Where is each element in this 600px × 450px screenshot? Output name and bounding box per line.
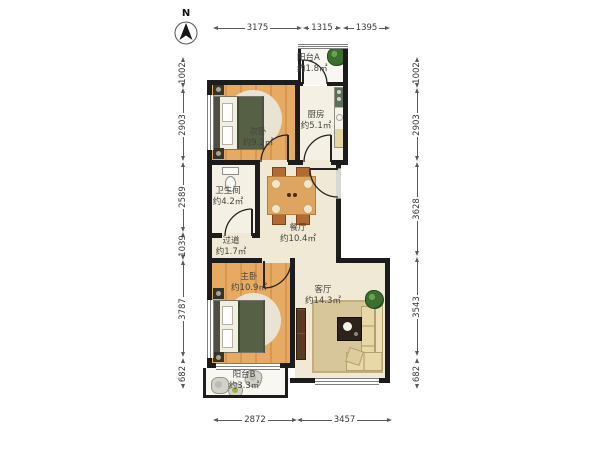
room-area: 约9.2㎡ (236, 138, 280, 149)
room-name: 客厅 (300, 285, 346, 296)
wall (255, 160, 260, 238)
stove-icon (335, 88, 343, 107)
dimension-top-1: 3175 (213, 22, 302, 34)
room-label-master: 主卧 约10.9㎡ (226, 272, 272, 293)
room-label-hallway: 过道 约1.7㎡ (209, 236, 253, 257)
dimension-right-4: 3543 (411, 257, 423, 356)
dimension-left-4: 1039 (177, 232, 189, 260)
nightstand (213, 288, 224, 299)
dimension-value: 2872 (242, 415, 268, 425)
room-name: 主卧 (226, 272, 272, 283)
dimension-right-5: 682 (411, 358, 423, 389)
wall (290, 258, 295, 368)
table-centerpiece (293, 193, 297, 197)
coffee-table (337, 317, 362, 341)
plate-icon (303, 204, 313, 214)
dimension-left-2: 2903 (177, 88, 189, 161)
floorplan-page: { "compass": { "label": "N" }, "dimensio… (0, 0, 600, 450)
nightstand (213, 84, 224, 95)
wall (207, 258, 262, 263)
room-name: 过道 (209, 236, 253, 247)
compass-north-arrow: N (168, 4, 204, 50)
dimension-value: 2903 (178, 114, 188, 136)
dimension-bottom-2: 3457 (297, 414, 392, 426)
wall (327, 82, 343, 86)
window (298, 44, 348, 49)
room-area: 约14.3㎡ (300, 296, 346, 307)
room-label-kitchen: 厨房 约5.1㎡ (294, 110, 338, 131)
table-centerpiece (287, 193, 291, 197)
room-label-dining: 餐厅 约10.4㎡ (275, 223, 321, 244)
dimension-top-2: 1315 (303, 22, 341, 34)
bed-pillow (222, 126, 233, 145)
dimension-value: 1039 (178, 235, 188, 257)
floor-plan: 阳台A 约1.8㎡ 厨房 约5.1㎡ 次卧 约9.2㎡ 卫生间 约4.2㎡ 过道… (0, 0, 600, 450)
room-label-balcony-b: 阳台B 约3.3㎡ (221, 370, 267, 391)
dimension-top-3: 1395 (343, 22, 390, 34)
dimension-value: 3787 (178, 298, 188, 320)
plate-icon (303, 179, 313, 189)
dimension-right-1: 1002 (411, 57, 423, 88)
window (216, 363, 280, 370)
toilet-tank-icon (222, 167, 239, 175)
nightstand (213, 352, 224, 362)
bed-headboard (214, 97, 220, 149)
entry-door-frame (336, 168, 341, 199)
room-area: 约3.3㎡ (221, 381, 267, 392)
room-label-bedroom2: 次卧 约9.2㎡ (236, 127, 280, 148)
counter-cabinet (335, 129, 343, 147)
dimension-left-5: 3787 (177, 260, 189, 357)
plant-icon (365, 290, 384, 309)
wall (285, 368, 288, 398)
room-name: 阳台A (297, 53, 339, 64)
plate-icon (271, 179, 281, 189)
dimension-value: 2903 (412, 114, 422, 136)
room-area: 约5.1㎡ (294, 121, 338, 132)
wall (252, 233, 260, 238)
wall (203, 395, 288, 398)
master-bed (213, 300, 265, 353)
compass-label: N (182, 8, 190, 19)
window (207, 300, 214, 358)
dimension-value: 3543 (412, 296, 422, 318)
room-name: 卫生间 (206, 186, 250, 197)
wall (207, 160, 256, 165)
wall (203, 368, 206, 398)
dimension-left-1: 1002 (177, 57, 189, 88)
dimension-left-6: 682 (177, 358, 189, 389)
dimension-value: 1002 (412, 62, 422, 84)
room-name: 阳台B (221, 370, 267, 381)
wall (343, 44, 348, 165)
dimension-value: 2589 (178, 186, 188, 208)
room-name: 餐厅 (275, 223, 321, 234)
plate-icon (271, 204, 281, 214)
bed-headboard (214, 301, 220, 352)
room-area: 约1.8㎡ (297, 64, 339, 75)
dimension-value: 1002 (178, 62, 188, 84)
dimension-value: 682 (412, 365, 422, 381)
dimension-right-2: 2903 (411, 88, 423, 161)
nightstand (213, 148, 224, 159)
dimension-left-3: 2589 (177, 162, 189, 232)
room-label-balcony-a: 阳台A 约1.8㎡ (297, 53, 339, 74)
wall (207, 80, 300, 85)
dimension-right-3: 3628 (411, 162, 423, 256)
bed-blanket (238, 301, 263, 352)
wall (300, 82, 303, 86)
window (207, 95, 214, 150)
room-area: 约4.2㎡ (206, 197, 250, 208)
dimension-value: 682 (178, 365, 188, 381)
tv-cabinet (296, 308, 306, 360)
room-label-bathroom: 卫生间 约4.2㎡ (206, 186, 250, 207)
dimension-value: 3457 (332, 415, 358, 425)
dimension-value: 1315 (309, 23, 335, 33)
wall (385, 258, 390, 383)
wall (288, 160, 303, 165)
dimension-value: 3175 (245, 23, 271, 33)
dimension-value: 1395 (354, 23, 380, 33)
room-label-living: 客厅 约14.3㎡ (300, 285, 346, 306)
room-area: 约10.9㎡ (226, 283, 272, 294)
dining-table (267, 176, 316, 215)
bed-pillow (222, 103, 233, 122)
room-area: 约10.4㎡ (275, 234, 321, 245)
room-area: 约1.7㎡ (209, 247, 253, 258)
wall (336, 197, 341, 263)
window (315, 378, 379, 385)
room-name: 次卧 (236, 127, 280, 138)
wall (336, 160, 341, 168)
dimension-value: 3628 (412, 198, 422, 220)
bed-pillow (222, 329, 233, 348)
dimension-bottom-1: 2872 (213, 414, 297, 426)
room-name: 厨房 (294, 110, 338, 121)
wall (336, 258, 390, 263)
bed-pillow (222, 306, 233, 325)
